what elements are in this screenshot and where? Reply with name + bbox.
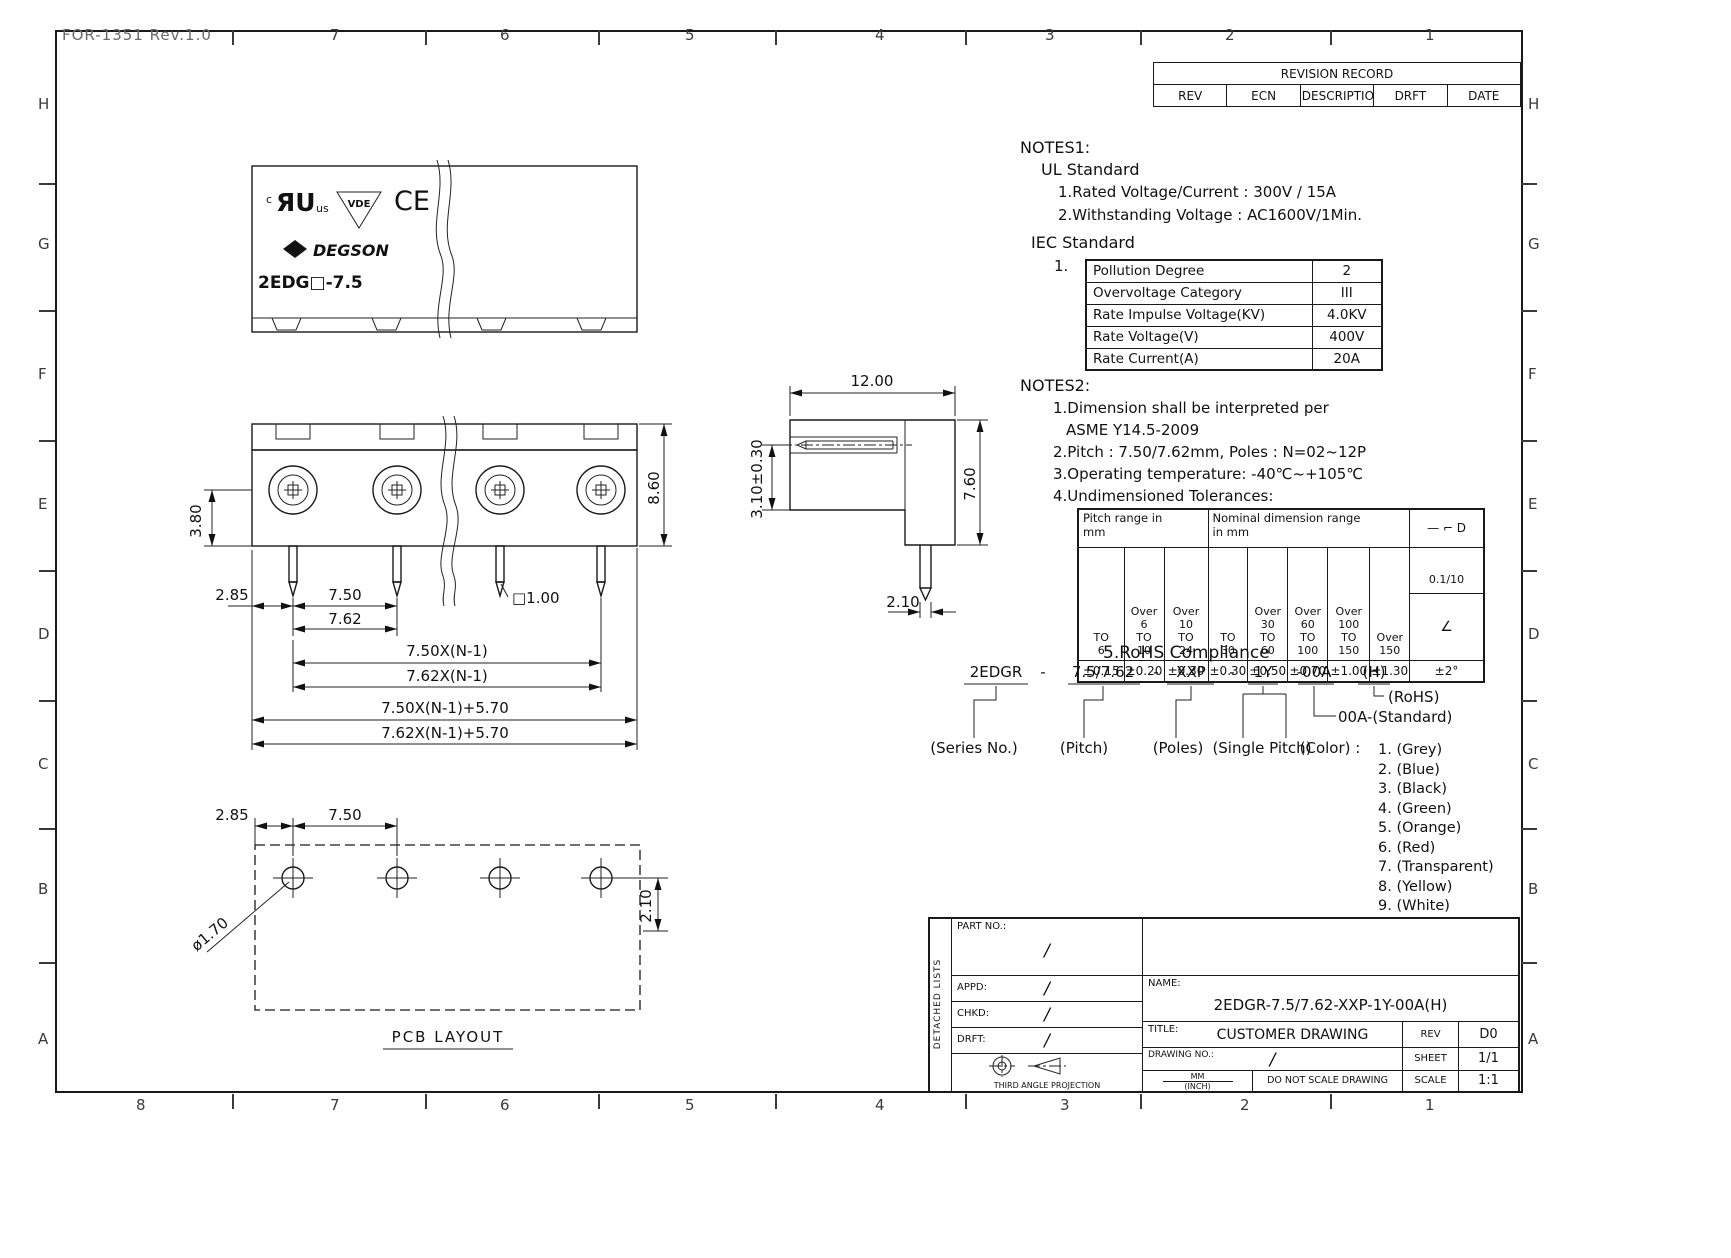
dim-square-1-00: □1.00 xyxy=(512,589,560,607)
detached-lists-strip: DETACHED LISTS xyxy=(929,918,952,1092)
front-view-dimensions: 3.80 8.60 2.85 7.50 7.62 □1.00 7.50X(N-1… xyxy=(187,424,672,750)
pcb-dim-2-85: 2.85 xyxy=(215,806,248,824)
sheet-value-cell: 1/1 xyxy=(1458,1047,1519,1071)
svg-text:-: - xyxy=(1153,663,1158,681)
rohs-label: (RoHS) xyxy=(1388,688,1439,706)
detached-lists-label: DETACHED LISTS xyxy=(933,944,943,1064)
pcb-dim-7-50: 7.50 xyxy=(328,806,361,824)
svg-text:ЯU: ЯU xyxy=(276,188,316,217)
svg-text:c: c xyxy=(266,193,272,206)
marking-view: c ЯU us VDE CE DEGSON 2EDG□-7.5 xyxy=(252,160,637,338)
model-marking: 2EDG□-7.5 xyxy=(258,273,363,293)
single-pitch-label: (Single Pitch) xyxy=(1212,739,1311,757)
part-name-value: 2EDGR-7.5/7.62-XXP-1Y-00A(H) xyxy=(1143,996,1518,1014)
units-cell: MM (INCH) xyxy=(1142,1070,1253,1092)
rev-label-cell: REV xyxy=(1402,1021,1459,1048)
side-view-dimensions: 12.00 7.60 3.10±0.30 2.10 xyxy=(748,372,988,618)
front-view xyxy=(252,416,637,606)
pcb-layout-view: 2.85 7.50 ø1.70 2.10 PCB LAYOUT xyxy=(188,806,668,1049)
units-inch: (INCH) xyxy=(1143,1082,1252,1091)
third-angle-projection-icon xyxy=(982,1055,1112,1077)
dim-8-60: 8.60 xyxy=(645,471,663,504)
standard-label: 00A-(Standard) xyxy=(1338,708,1452,726)
dim-7-50: 7.50 xyxy=(328,586,361,604)
chkd-cell: CHKD: / xyxy=(951,1001,1143,1028)
ce-mark: CE xyxy=(394,186,430,217)
side-view xyxy=(780,420,955,600)
part-no-label: PART NO.: xyxy=(957,921,1006,932)
dim-7-60: 7.60 xyxy=(961,467,979,500)
pn-single-pitch: 1Y xyxy=(1254,663,1274,681)
color-label: (Color) : xyxy=(1300,739,1361,757)
svg-text:-: - xyxy=(1040,663,1045,681)
pcb-layout-label: PCB LAYOUT xyxy=(392,1028,505,1046)
terminal-circles xyxy=(269,466,625,514)
dim-12-00: 12.00 xyxy=(851,372,894,390)
side-solder-pin xyxy=(920,545,931,600)
units-mm: MM xyxy=(1143,1072,1252,1081)
pitch-label: (Pitch) xyxy=(1060,739,1108,757)
drawing-sheet: FOR-1351 Rev.1.0 7 6 5 4 3 2 1 8 7 6 5 4… xyxy=(0,0,1731,1258)
svg-text:VDE: VDE xyxy=(348,199,371,210)
poles-label: (Poles) xyxy=(1153,739,1204,757)
vde-icon: VDE xyxy=(337,192,381,228)
part-no-cell: PART NO.: / xyxy=(951,918,1143,976)
dim-7-62: 7.62 xyxy=(328,610,361,628)
rev-value-cell: D0 xyxy=(1458,1021,1519,1048)
pn-pitch: 7.5/7.62 xyxy=(1072,663,1134,681)
svg-text:us: us xyxy=(316,202,329,215)
appd-cell: APPD: / xyxy=(951,975,1143,1002)
contact-pin xyxy=(780,441,912,449)
name-label: NAME: xyxy=(1148,978,1181,989)
title-cell: TITLE: CUSTOMER DRAWING xyxy=(1142,1021,1403,1048)
pcb-dim-hole-dia: ø1.70 xyxy=(188,914,232,955)
dim-750xn1: 7.50X(N-1) xyxy=(406,642,488,660)
pn-suffix: -00A xyxy=(1297,663,1332,681)
dim-750xn1-570: 7.50X(N-1)+5.70 xyxy=(381,699,509,717)
title-label: TITLE: xyxy=(1148,1024,1178,1035)
scale-label-cell: SCALE xyxy=(1402,1070,1459,1092)
degson-logo: DEGSON xyxy=(283,240,389,260)
title-block: DETACHED LISTS PART NO.: / APPD: / CHKD:… xyxy=(928,917,1520,1093)
scale-value-cell: 1:1 xyxy=(1458,1070,1519,1092)
drill-holes xyxy=(273,858,621,898)
series-label: (Series No.) xyxy=(930,739,1018,757)
dim-2-10-side: 2.10 xyxy=(886,593,919,611)
pcb-dim-2-10: 2.10 xyxy=(637,889,655,922)
svg-text:-: - xyxy=(1229,663,1234,681)
dim-3-10: 3.10±0.30 xyxy=(748,439,766,518)
projection-cell: THIRD ANGLE PROJECTION xyxy=(951,1053,1143,1092)
no-scale-cell: DO NOT SCALE DRAWING xyxy=(1252,1070,1403,1092)
dim-762xn1-570: 7.62X(N-1)+5.70 xyxy=(381,724,509,742)
drawing-no-cell: DRAWING NO.: / xyxy=(1142,1047,1403,1071)
svg-text:DEGSON: DEGSON xyxy=(313,241,389,260)
drawing-title: CUSTOMER DRAWING xyxy=(1183,1027,1402,1043)
part-number-breakdown: 2EDGR - 7.5/7.62 - XXP - 1Y -00A (H) (Se… xyxy=(930,663,1452,757)
dim-2-85: 2.85 xyxy=(215,586,248,604)
projection-label: THIRD ANGLE PROJECTION xyxy=(952,1081,1142,1090)
name-cell: NAME: 2EDGR-7.5/7.62-XXP-1Y-00A(H) xyxy=(1142,975,1519,1022)
drft-cell: DRFT: / xyxy=(951,1027,1143,1054)
pn-rohs-code: (H) xyxy=(1363,663,1386,681)
dim-3-80: 3.80 xyxy=(187,504,205,537)
dim-762xn1: 7.62X(N-1) xyxy=(406,667,488,685)
sheet-label-cell: SHEET xyxy=(1402,1047,1459,1071)
pn-series: 2EDGR xyxy=(970,663,1023,681)
blank-cell xyxy=(1142,918,1519,976)
ul-recognized-icon: c ЯU us xyxy=(266,188,329,217)
pn-poles: XXP xyxy=(1176,663,1206,681)
